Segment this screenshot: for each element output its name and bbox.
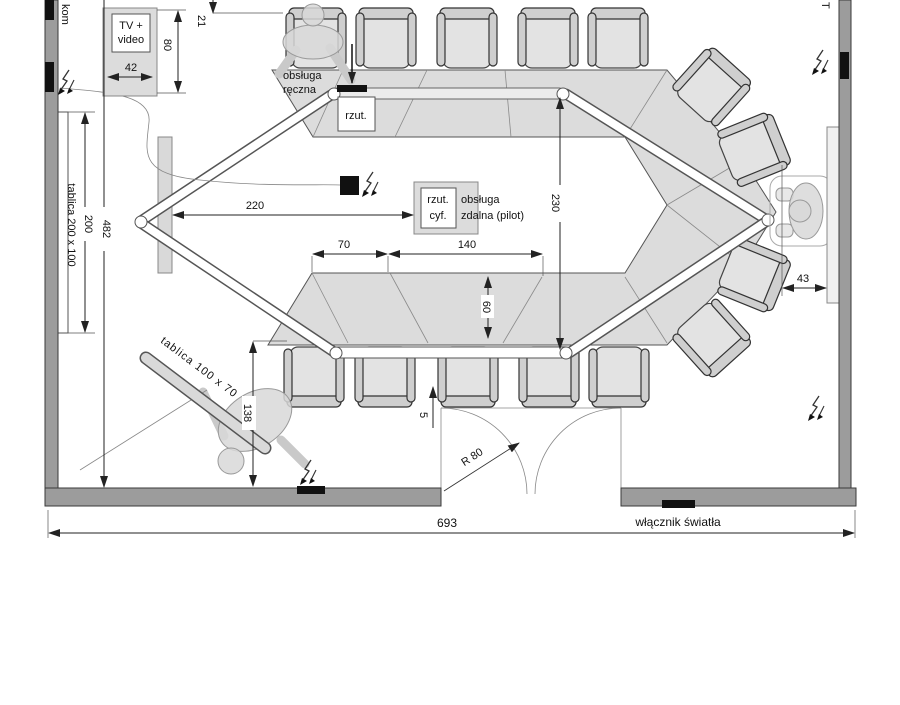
tv-label-line2: video xyxy=(118,34,144,46)
dim-60: 60 xyxy=(480,301,492,313)
person-head-of-table xyxy=(770,176,832,246)
wlacznik-swiatla-label: włącznik światła xyxy=(634,515,721,529)
wall-seg-3 xyxy=(840,52,849,79)
floor-plan-drawing: rzut. obsługa ręczna rzut. cyf. obsługa … xyxy=(0,0,900,700)
tablica-200-label: tablica 200 x 100 xyxy=(65,183,77,266)
obsluga-reczna-line2: ręczna xyxy=(283,84,317,96)
rzut-cyf-line2: cyf. xyxy=(429,210,446,222)
bottom-screen-bar xyxy=(332,347,568,358)
tv-cabinet: TV + video 42 80 xyxy=(103,8,186,96)
door-opening xyxy=(441,486,621,508)
dim-5-group: 5 xyxy=(417,387,433,428)
dim-70: 70 xyxy=(338,239,350,251)
wall-tick-bottom xyxy=(297,486,325,494)
dim-230: 230 xyxy=(549,194,561,212)
rzut-label: rzut. xyxy=(345,110,366,122)
rzut-cyf-line1: rzut. xyxy=(427,194,448,206)
projector-digital: rzut. cyf. obsługa zdalna (pilot) xyxy=(414,182,524,234)
outlet-square xyxy=(340,176,359,195)
lightning-icon-top-right xyxy=(812,50,828,75)
t-partial-label: T xyxy=(819,2,831,9)
dim-220: 220 xyxy=(246,200,264,212)
dim-5: 5 xyxy=(417,412,429,418)
door-swing-left xyxy=(441,408,527,494)
door-swing-right xyxy=(535,408,621,494)
projector-mount xyxy=(337,85,367,92)
chair-top-3 xyxy=(437,8,497,68)
obsluga-zdalna-line2: zdalna (pilot) xyxy=(461,210,524,222)
wall-seg-2 xyxy=(45,62,54,92)
dim-482: 482 xyxy=(100,220,112,238)
light-switch-mark xyxy=(662,500,695,508)
wall-seg-1 xyxy=(45,0,54,20)
lightning-icon-right-wall xyxy=(808,396,824,421)
wall-bottom-right xyxy=(621,488,856,506)
dim-43: 43 xyxy=(797,273,809,285)
tv-label-line1: TV + xyxy=(119,20,143,32)
dim-21: 21 xyxy=(195,15,207,27)
obsluga-zdalna-line1: obsługa xyxy=(461,194,500,206)
right-board-outline xyxy=(827,127,839,303)
wall-bottom-left xyxy=(45,488,441,506)
chair-top-4 xyxy=(518,8,578,68)
dim-200: 200 xyxy=(82,215,94,233)
dim-138: 138 xyxy=(241,404,253,422)
dim-21-group: 21 xyxy=(195,0,283,27)
dim-42: 42 xyxy=(125,62,137,74)
lightning-icon xyxy=(362,172,378,197)
door-radius-line xyxy=(444,443,519,491)
dim-80: 80 xyxy=(161,39,173,51)
dim-693-group: 693 włącznik światła xyxy=(48,510,855,538)
lightning-icon-left-wall xyxy=(58,70,74,95)
chair-top-2 xyxy=(356,8,416,68)
double-door: R 80 xyxy=(441,408,621,508)
flipboard-leader xyxy=(80,390,207,470)
floor-plan-page: rzut. obsługa ręczna rzut. cyf. obsługa … xyxy=(0,0,900,700)
obsluga-reczna-line1: obsługa xyxy=(283,70,322,82)
r80-label: R 80 xyxy=(459,446,485,469)
dim-140: 140 xyxy=(458,239,476,251)
chair-top-5 xyxy=(588,8,648,68)
dim-220-group: 220 xyxy=(173,200,413,215)
chair-bottom-5 xyxy=(589,347,649,407)
kom-label: kom xyxy=(59,4,71,25)
dim-693: 693 xyxy=(437,516,457,530)
